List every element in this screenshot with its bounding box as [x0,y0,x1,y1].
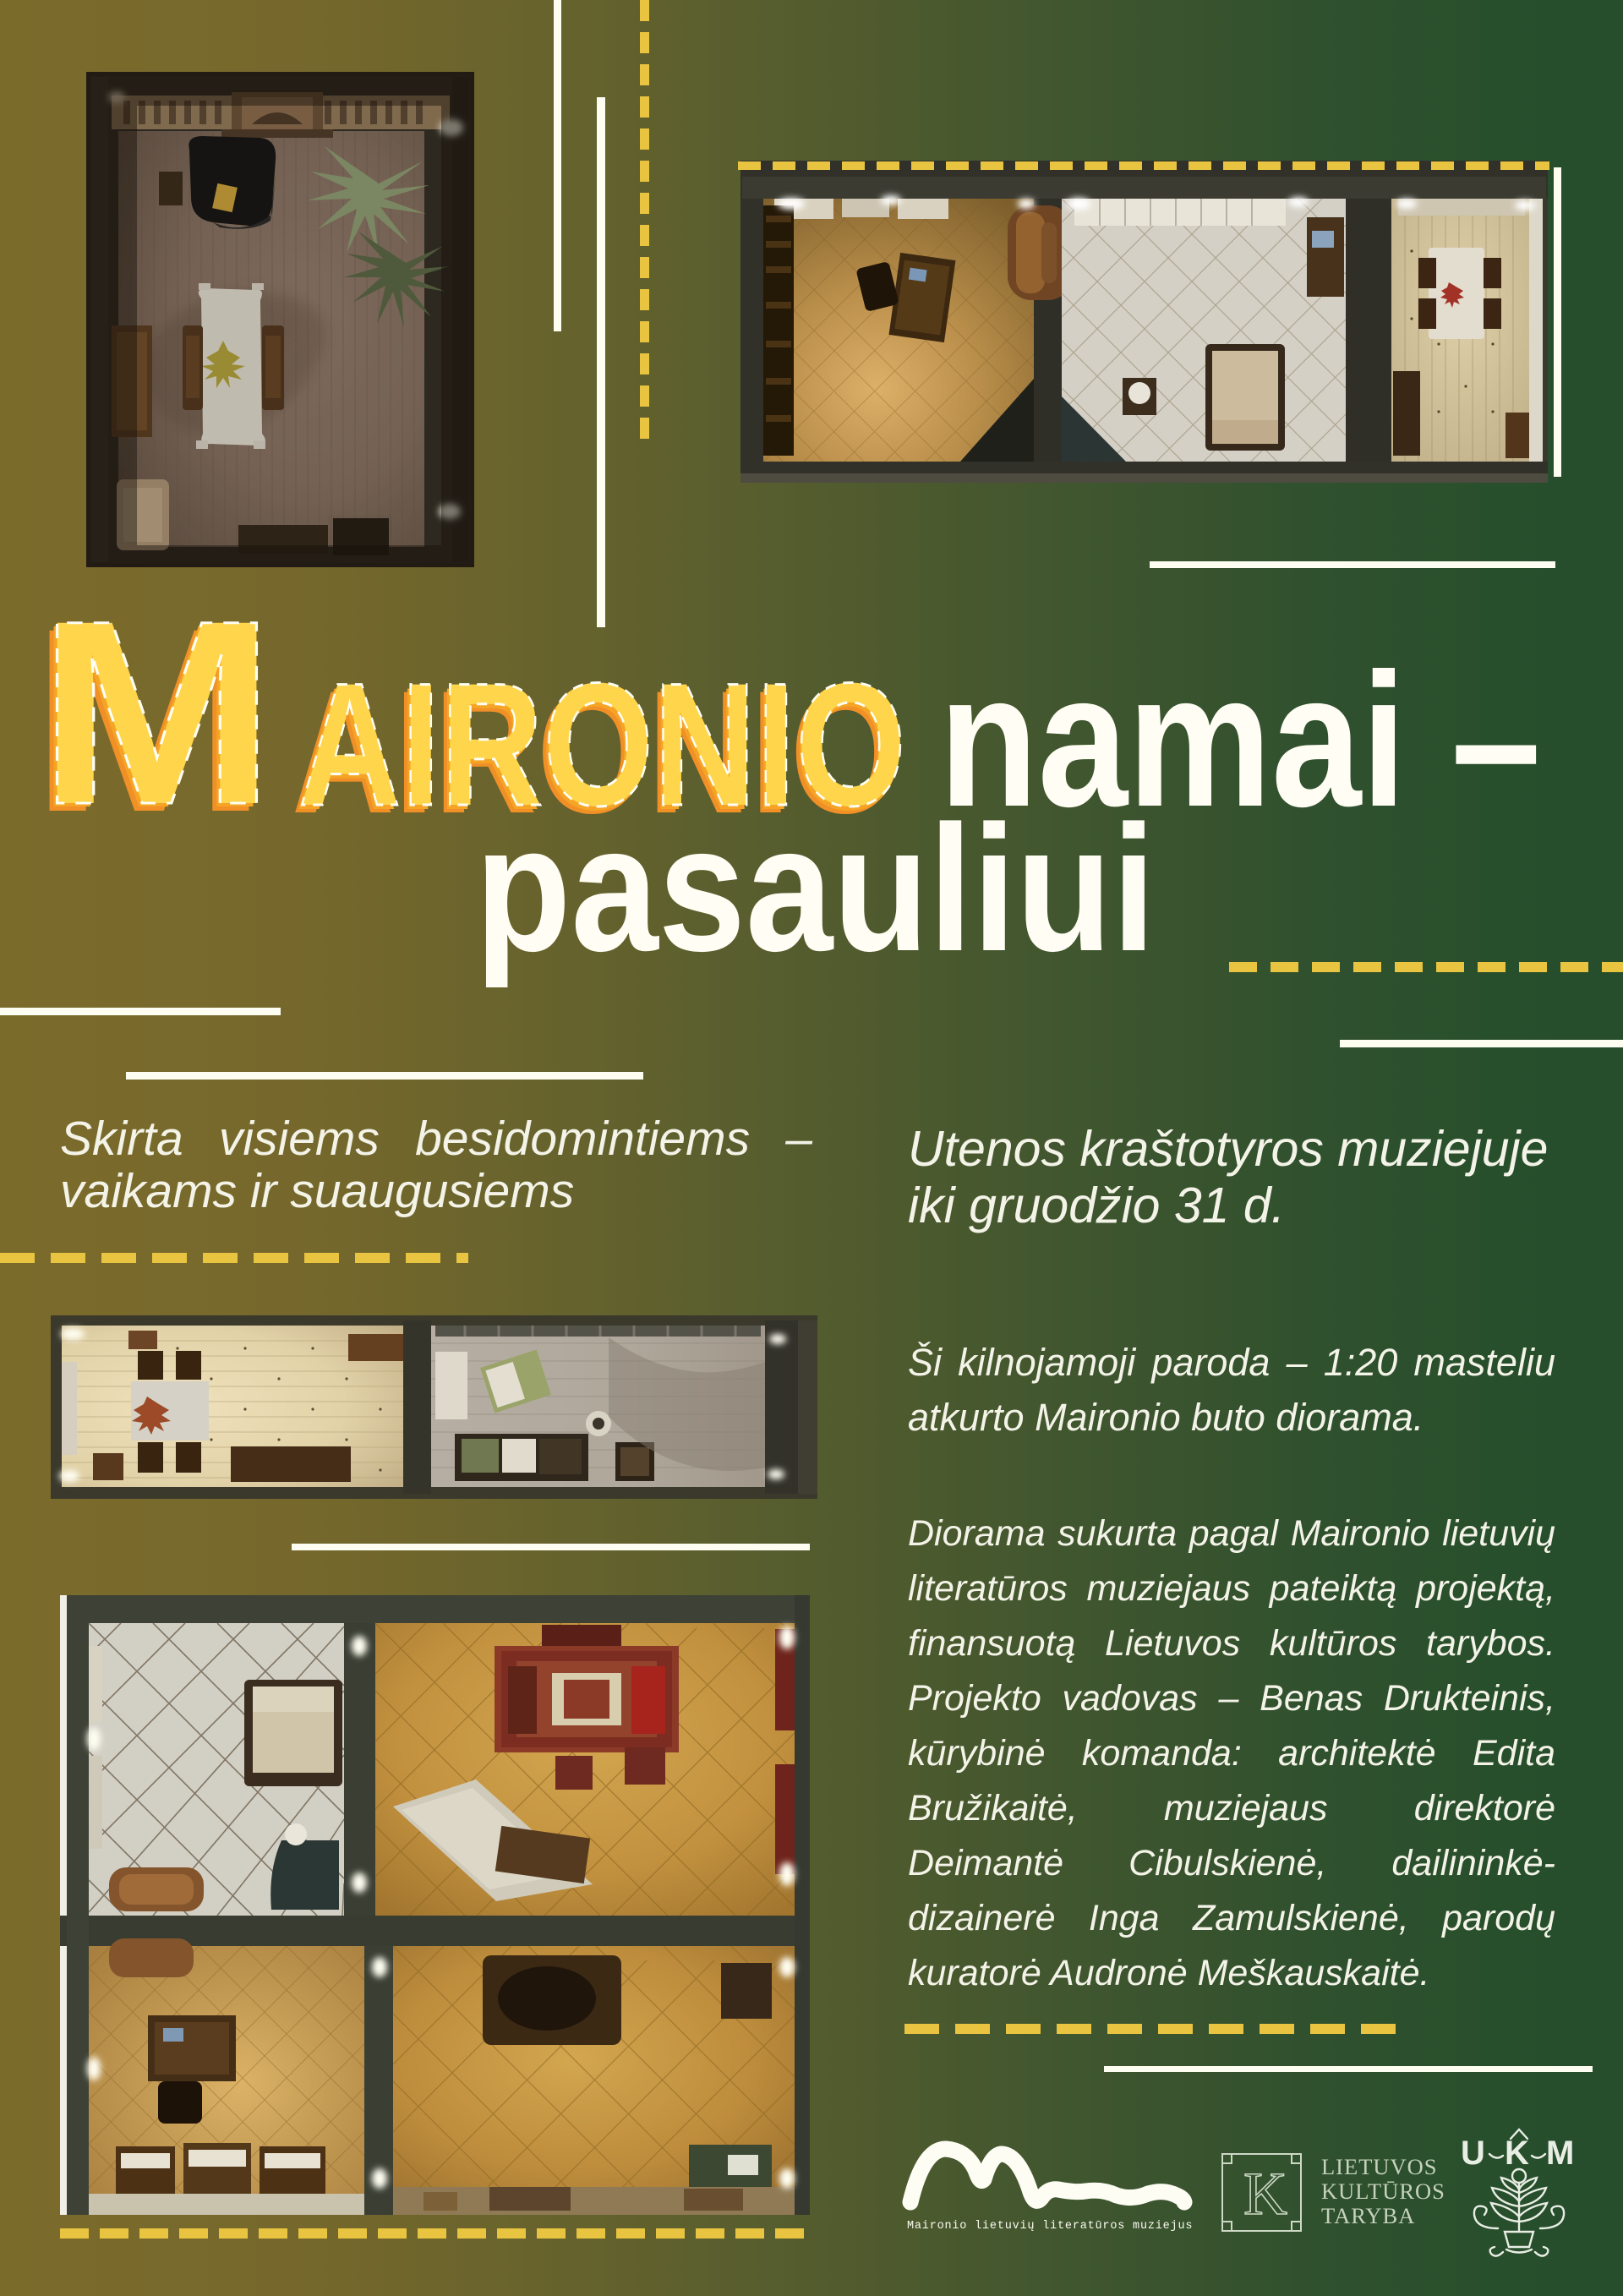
svg-text:K: K [1243,2160,1287,2228]
svg-text:M: M [38,575,276,859]
svg-text:Maironio lietuvių literatūros: Maironio lietuvių literatūros muziejus [907,2220,1193,2233]
svg-text:LIETUVOS: LIETUVOS [1321,2154,1438,2179]
svg-text:KULTŪROS: KULTŪROS [1321,2178,1445,2204]
svg-text:M: M [1546,2135,1574,2172]
svg-text:U: U [1461,2135,1485,2172]
svg-text:pasauliui: pasauliui [475,788,1156,988]
svg-text:TARYBA: TARYBA [1321,2203,1415,2228]
svg-text:K: K [1505,2135,1529,2172]
